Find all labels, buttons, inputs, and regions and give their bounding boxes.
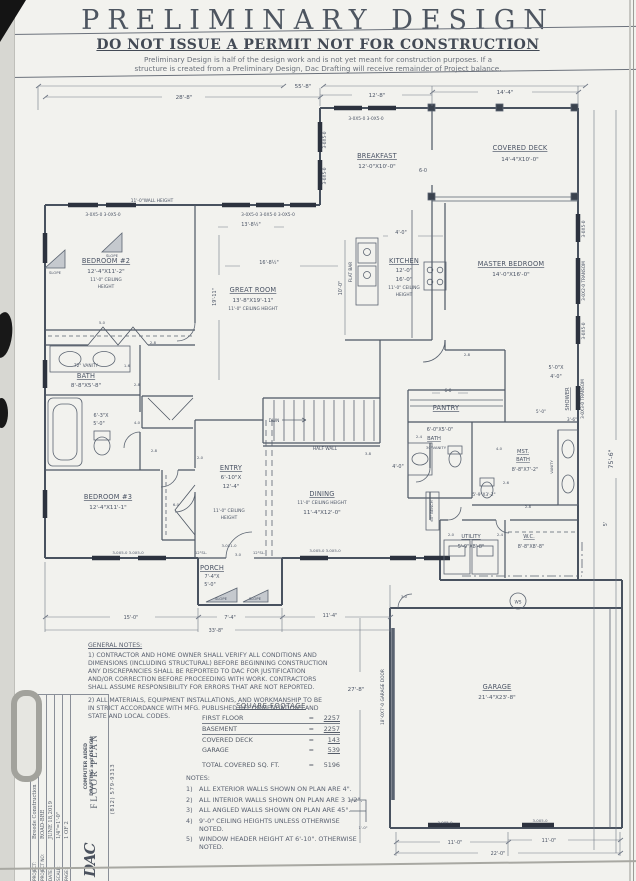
window-label: 3-0X2-0 TRANSOM (581, 261, 587, 301)
notes-list: NOTES: 1) ALL EXTERIOR WALLS SHOWN ON PL… (186, 774, 364, 854)
dim-label: 12'-8" (369, 93, 386, 99)
door-size-label: 2-0 (448, 532, 455, 537)
general-notes-title: GENERAL NOTES: (88, 642, 328, 650)
deck-post (571, 104, 578, 111)
sheet-title: FLOOR PLAN (89, 716, 101, 826)
note-number: 5) (186, 835, 199, 851)
room-dims: 11'-4"X12'-0" (303, 510, 341, 516)
room-dims: 8'-8"X7'-2" (512, 467, 539, 473)
toilet-icon (449, 451, 461, 467)
notes-title: NOTES: (186, 774, 364, 782)
table-row: GARAGE = 539 (202, 745, 340, 755)
door-size-label: 2-8 (464, 352, 471, 357)
field-value: JUNE 18,2019 (48, 801, 54, 839)
toilet-tank (448, 446, 462, 454)
door-size-label: 4-0 (134, 420, 141, 425)
room-dims: 6'-0"X5'-0" (427, 427, 454, 433)
door-size-label: 3-0 (235, 552, 242, 557)
dim-label: 75'-6" (607, 449, 615, 468)
room-label-wc: W.C. (523, 534, 535, 540)
sink-icon (412, 453, 428, 465)
dim-label: 5' (603, 522, 609, 526)
room-dims: 14'-4"X10'-0" (501, 157, 539, 163)
door-size-label: 2-4 (497, 532, 504, 537)
blueprint-sheet: PRELIMINARY DESIGN DO NOT ISSUE A PERMIT… (0, 0, 636, 881)
window-label: 3-0X5-0 3-0X5-0 (348, 116, 384, 122)
door-size-label: 6-0 (419, 168, 427, 174)
room-label-great-room: GREAT ROOM (230, 286, 277, 294)
list-item: 2) ALL INTERIOR WALLS SHOWN ON PLAN ARE … (186, 796, 364, 804)
window-label: 3-0X5-0 (581, 322, 587, 339)
dim-label: 4'-0" (395, 230, 407, 236)
room-dims: 4'-0" (550, 374, 562, 380)
binder-clip-artifact (11, 690, 42, 782)
window-label: 3-0X5-0 (532, 818, 548, 823)
dim-label: 5'-9"X3'-2" (472, 492, 495, 498)
field-label: DATE: (48, 839, 54, 881)
appliance-knob (364, 249, 371, 256)
table-row: COVERED DECK = 143 (202, 735, 340, 745)
appliance-icon (358, 266, 376, 286)
list-item: 1) ALL EXTERIOR WALLS SHOWN ON PLAN ARE … (186, 785, 364, 793)
field-value: 1 OF 2 (64, 821, 70, 839)
master-vanity (558, 430, 578, 505)
room-dims: 6'-3"X (94, 413, 110, 419)
dim-label: 55'-8" (295, 84, 312, 90)
list-item: 4) 9'-0" CEILING HEIGHTS UNLESS OTHERWIS… (186, 817, 364, 833)
window-label: 3-0X1-0 (221, 543, 237, 548)
ceiling-note: 11'-0" CEILING HEIGHT (297, 500, 347, 506)
garage-door-label: 18'-0X7'-0 GARAGE DOOR (380, 669, 386, 725)
field-row: DATE: JUNE 18,2019 (47, 695, 55, 881)
field-value: Breede Construction (32, 784, 38, 839)
slope-label: SLOPE (249, 596, 262, 601)
dim-label: 28'-8" (176, 95, 193, 101)
window-label: 3-0X5-0 (437, 820, 453, 825)
room-dims: 13'-8"X19'-11" (232, 298, 273, 304)
field-label: SCALE: (56, 839, 62, 881)
room-label-entry: ENTRY (220, 464, 243, 472)
row-value: 539 (314, 746, 340, 754)
dim-label: 22'-0" (491, 851, 506, 857)
square-footage-title: SQUARE FOOTAGE (202, 702, 340, 710)
door-size-label: 3-0 (401, 594, 408, 599)
dim-label: 7'-4" (224, 615, 236, 621)
appliance-icon (358, 243, 376, 263)
vanity-label: 72" VANITY (74, 363, 99, 369)
door-size-label: 2-8 (150, 340, 157, 345)
table-row: BASEMENT = 2257 (202, 724, 340, 735)
title-block: PROJECT: Breede Construction PROJECT NO:… (30, 694, 116, 881)
ceiling-note: 11'-0" CEILING HEIGHT (228, 306, 278, 312)
ceiling-note: 11'-0" CEILING (90, 277, 121, 283)
dim-label: 33'-8" (209, 628, 224, 634)
row-value: 2257 (314, 725, 340, 733)
dim-label: 3'-6" (567, 417, 577, 423)
dim-label: 13'-8½" (241, 221, 260, 228)
door-size-label: 1-6 (124, 363, 131, 368)
vanity-label: VANITY (549, 460, 554, 474)
room-dims: 12'-4" (223, 484, 240, 490)
scan-corner-artifact (0, 0, 26, 42)
room-label-breakfast: BREAKFAST (357, 152, 398, 160)
ceiling-note: HEIGHT (221, 515, 238, 521)
row-label: COVERED DECK (202, 736, 309, 744)
note-number: 3) (186, 806, 199, 814)
field-label: PROJECT NO: (40, 839, 46, 881)
slope-triangle (102, 233, 122, 252)
room-dims: 12'-0" (396, 268, 413, 274)
field-label: PAGE: (64, 839, 70, 881)
room-dims: 5'-9"X8'-8" (458, 544, 485, 550)
list-item: 3) ALL ANGLED WALLS SHOWN ON PLAN ARE 45… (186, 806, 364, 814)
square-footage-table: SQUARE FOOTAGE FIRST FLOOR = 2257 BASEME… (202, 702, 340, 769)
dim-label: 10'-0" (338, 281, 344, 296)
dim-label: 11'-4" (323, 613, 338, 619)
room-label-kitchen: KITCHEN (389, 257, 419, 265)
dim-label: 11'-0" (448, 840, 463, 846)
tub-inner (53, 404, 77, 460)
dim-label: 15'-0" (124, 615, 139, 621)
dim-label: 16'-8½" (259, 259, 278, 266)
window-label: 3-0X3-0 TRANSOM (580, 379, 586, 419)
paper-edge (633, 0, 634, 881)
door-size-label: 2-4 (416, 434, 423, 439)
room-label-dining: DINING (309, 490, 334, 498)
burner (437, 267, 443, 273)
half-wall-label: HALF WALL (313, 446, 338, 452)
dac-logo: DAC (81, 837, 99, 881)
dim-label: 27'-8" (348, 687, 365, 693)
note-number: 1) (186, 785, 199, 793)
window-label: 3-0X5-0 3-0X5-0 (309, 548, 341, 553)
deck-post (428, 193, 435, 200)
room-dims: 8'-8"X5'-8" (71, 383, 102, 389)
total-value: 5196 (314, 761, 340, 769)
field-row: PAGE: 1 OF 2 (63, 695, 70, 881)
room-dims: 12'-4"X11'-1" (89, 505, 127, 511)
company-line-1: COMPUTER AIDED (84, 743, 89, 789)
room-dims: 5'-0" (204, 582, 216, 588)
room-dims: 16'-0" (396, 277, 413, 283)
table-total-row: TOTAL COVERED SQ. FT. = 5196 (202, 761, 340, 769)
window-label: 3-0X5-0 3-0X5-0 3-0X5-0 (241, 212, 295, 218)
room-label-garage: GARAGE (483, 683, 512, 691)
room-label-bath: BATH (77, 372, 95, 380)
room-dims: 5'-0"X (549, 365, 565, 371)
table-row: FIRST FLOOR = 2257 (202, 713, 340, 724)
ceiling-note: 11'-0" CEILING (388, 285, 419, 291)
slope-triangle (45, 250, 65, 268)
row-value: 2257 (314, 714, 340, 722)
dim-label: 3-8 (365, 451, 372, 456)
room-label-pantry: PANTRY (433, 404, 460, 412)
room-dims: 21'-4"X23'-8" (478, 695, 516, 701)
paper-edge (629, 0, 631, 881)
field-label: PROJECT: (32, 839, 38, 881)
slope-label: SLOPE (215, 596, 228, 601)
room-label-mst-bath: BATH (516, 457, 530, 463)
dim-label: 4'-0" (392, 464, 404, 470)
room-dims: 12'-0"X10'-0" (358, 164, 396, 170)
ceiling-note: 11'-0" CEILING (213, 508, 244, 514)
room-label-bedroom3: BEDROOM #3 (84, 493, 132, 501)
room-label-bath2: BATH (427, 436, 441, 442)
field-row: SCALE: 1/4"=1'-0" (55, 695, 63, 881)
window-label: 3-0X5-0 (581, 220, 587, 237)
vanity-label: 30"VANITY (426, 445, 447, 450)
room-label-bedroom2: BEDROOM #2 (82, 257, 130, 265)
sink-icon (562, 440, 574, 458)
stair-treads (274, 400, 374, 441)
room-label-shower: SHOWER (565, 387, 571, 411)
room-label-master: MASTER BEDROOM (478, 260, 545, 268)
dwn-label: DWN (269, 418, 280, 424)
note-text: ALL EXTERIOR WALLS SHOWN ON PLAN ARE 4". (199, 785, 352, 793)
slope-label: SLOPE (49, 270, 62, 275)
ceiling-note: HEIGHT (98, 284, 115, 290)
row-label: BASEMENT (202, 725, 309, 733)
door-size-label: 2-6 (503, 480, 510, 485)
cooktop-icon (424, 262, 446, 290)
window-label: 3-0X5-0 3-0X5-0 (85, 212, 121, 218)
room-dims: 12'-4"X11'-2" (87, 269, 125, 275)
room-label-utility: UTILITY (461, 534, 481, 540)
room-dims: 6'-10"X (221, 475, 242, 481)
general-note-1: 1) CONTRACTOR AND HOME OWNER SHALL VERIF… (88, 652, 328, 692)
dim-label: 6-0 (444, 388, 451, 394)
dim-label: 14'-4" (497, 90, 514, 96)
dim-label: 5'-0" (536, 409, 546, 415)
note-number: 2) (186, 796, 199, 804)
room-dims: 7'-4"X (205, 574, 221, 580)
sidelight-label: 12"SL. (195, 550, 207, 555)
note-text: ALL ANGLED WALLS SHOWN ON PLAN ARE 45°. (199, 806, 351, 814)
door-size-label: 6-0 (173, 502, 180, 507)
deck-post (496, 104, 503, 111)
toilet-tank (94, 431, 110, 440)
window-label: 3-0X5-0 (322, 131, 328, 148)
door-size-label: 4-0 (496, 446, 503, 451)
room-dims: 5'-0" (93, 421, 105, 427)
door-size-label: 2-0 (197, 455, 204, 460)
list-item: 5) WINDOW HEADER HEIGHT AT 6'-10". OTHER… (186, 835, 364, 851)
room-label-mst-bath: MST. (517, 449, 529, 455)
phone-number: (812) 579-9313 (109, 694, 116, 881)
note-number: 4) (186, 817, 199, 833)
ws-marker-label: WS (515, 600, 522, 606)
bench-label: 60" BENCH (429, 500, 434, 521)
door-size-label: 2-8 (134, 382, 141, 387)
field-value: ROAD-BRE (40, 810, 46, 839)
note-text: WINDOW HEADER HEIGHT AT 6'-10". OTHERWIS… (199, 835, 364, 851)
deck-post (428, 104, 435, 111)
door-size-label: 2-8 (525, 504, 532, 509)
dim-label: 11'-0" (542, 838, 557, 844)
burner (437, 279, 443, 285)
dim-label: 19'-11" (212, 288, 218, 306)
door-size-label: 5-0 (99, 320, 106, 325)
wall-height-label: 11'-0"WALL HEIGHT (131, 198, 174, 204)
note-text: ALL INTERIOR WALLS SHOWN ON PLAN ARE 3 1… (199, 796, 362, 804)
field-value: 1/4"=1'-0" (56, 812, 62, 839)
window-label: 3-0X5-0 3-0X5-0 (112, 550, 144, 555)
room-label-porch: PORCH (200, 564, 224, 572)
row-label: GARAGE (202, 746, 309, 754)
total-label: TOTAL COVERED SQ. FT. (202, 761, 309, 769)
row-label: FIRST FLOOR (202, 714, 309, 722)
room-dims: 8'-8"X8'-8" (518, 544, 545, 550)
appliance-knob (364, 272, 371, 279)
window-label: 3-0X5-0 (322, 167, 328, 184)
ceiling-note: HEIGHT (396, 292, 413, 298)
row-value: 143 (314, 736, 340, 744)
room-dims: 14'-0"X16'-0" (492, 272, 530, 278)
flat-bar-label: FLAT BAR (348, 262, 354, 282)
room-label-covered-deck: COVERED DECK (493, 144, 548, 152)
door-size-label: 2-8 (151, 448, 158, 453)
note-text: 9'-0" CEILING HEIGHTS UNLESS OTHERWISE N… (199, 817, 364, 833)
deck-post (571, 193, 578, 200)
sidelight-label: 12"SL. (253, 550, 265, 555)
sink-icon (562, 475, 574, 493)
